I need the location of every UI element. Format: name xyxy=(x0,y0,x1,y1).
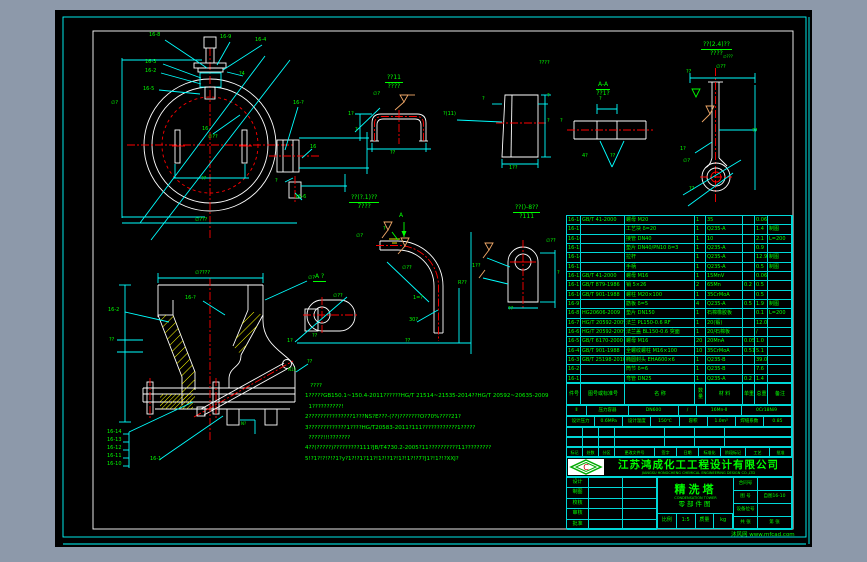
bom-cell-total-weight: 0.5 xyxy=(755,281,768,289)
title-right-row: 共 张 第 张 xyxy=(734,517,792,530)
bom-cell-no: 16-12 xyxy=(567,272,581,280)
view-title: ??(?.1)?? 7??? xyxy=(349,194,379,211)
title-right-value xyxy=(758,504,792,516)
summary-cell: Ⅱ xyxy=(567,406,587,415)
bom-header: 件号 图号或标准号 名 称 数量 材 料 单重 总重 备注 xyxy=(566,383,793,405)
view-title-scale: ???? xyxy=(385,83,403,91)
table-row: 16-10 GB/T 901-1988 螺柱 M20×100 1 35CrMoA… xyxy=(567,291,792,300)
bom-cell-material: Q235-B xyxy=(706,356,743,364)
bom-cell-total-weight: 1.0 xyxy=(755,337,768,345)
annotation-label: 30? xyxy=(409,317,418,323)
bom-cell-no: 16-5 xyxy=(567,337,581,345)
annotation-label: ? xyxy=(355,127,358,133)
bom-cell-remark xyxy=(768,281,792,289)
bom-cell-name: 拉杆 xyxy=(625,253,695,261)
bom-cell-unit-weight xyxy=(743,319,755,327)
bom-cell-unit-weight xyxy=(743,309,755,317)
drawing-title: 精洗塔 xyxy=(675,484,717,496)
bom-cell-material: 35 xyxy=(706,216,743,224)
annotation-label: 16 xyxy=(310,144,316,150)
scale-cell: 比例 xyxy=(658,514,677,528)
table-row: 16-15 垫片 DN40/PN10 δ=3 1 Q235-A 0.9 xyxy=(567,244,792,253)
bom-cell-standard xyxy=(581,375,625,383)
bom-cell-name: 垫片 DN150 xyxy=(625,309,695,317)
bom-header-material: 材 料 xyxy=(706,384,743,404)
bom-cell-name: 螺母 M16 xyxy=(625,272,695,280)
bom-cell-standard: GB/T 879-1986 xyxy=(581,281,625,289)
revision-empty-cell xyxy=(665,428,695,436)
revision-header-row: 标记处数分区更改文件号签字日期标准化阶段标记工艺批准 xyxy=(566,447,793,457)
bom-cell-standard: GB/T 41-2000 xyxy=(581,272,625,280)
annotation-label: ? xyxy=(383,226,386,232)
summary-cell: / xyxy=(679,406,697,415)
bom-cell-standard xyxy=(581,300,625,308)
bom-cell-remark: 制图 xyxy=(768,263,792,271)
revision-empty-cell xyxy=(615,428,665,436)
revision-empty-cell xyxy=(615,438,665,446)
summary-cell: 设计温度 xyxy=(623,417,651,426)
bom-cell-standard xyxy=(581,244,625,252)
bom-cell-unit-weight: 0.51 xyxy=(743,347,755,355)
revision-header-cell: 分区 xyxy=(599,448,615,456)
bom-cell-qty: 1 xyxy=(695,263,706,271)
title-right-row: 合同号 xyxy=(734,478,792,491)
annotation-label: 16-1 xyxy=(150,456,161,462)
view-title-scale: ??1? xyxy=(596,90,610,98)
title-center: 精洗塔 CONDENSATION TOWER 零部件图 比例1:5质量kg xyxy=(658,478,734,528)
table-row: 16-12 GB/T 41-2000 螺母 M16 1 15MnV 0.06 xyxy=(567,272,792,281)
bom-cell-material: 15MnV xyxy=(706,272,743,280)
revision-header-cell: 签字 xyxy=(655,448,677,456)
annotation-label: 16-13 xyxy=(107,437,122,443)
revision-empty-cell xyxy=(725,428,792,436)
signature-name-cell xyxy=(589,509,623,518)
bom-cell-name: 接管 DN40 xyxy=(625,235,695,243)
bom-cell-no: 16-6 xyxy=(567,328,581,336)
bom-cell-no: 16-11 xyxy=(567,281,581,289)
bom-cell-total-weight: 12.9 xyxy=(755,253,768,261)
annotation-label: ∅? xyxy=(683,158,690,164)
view-title-scale: 7??? xyxy=(349,203,379,211)
signature-date-cell xyxy=(623,499,657,508)
bom-cell-name: 手柄 xyxy=(625,263,695,271)
bom-header-total-weight: 总重 xyxy=(755,384,768,404)
bom-cell-standard: GB/T 901-1988 xyxy=(581,347,625,355)
annotation-label: 1? xyxy=(680,146,686,152)
revision-empty-row xyxy=(566,427,793,437)
table-row: 16-3 GB/T 25198-2010 椭圆封头 EHA600×6 1 Q23… xyxy=(567,356,792,365)
bom-cell-qty: 4 xyxy=(695,300,706,308)
revision-header-cell: 更改文件号 xyxy=(615,448,655,456)
title-right-value xyxy=(758,478,792,490)
signature-name-cell xyxy=(589,499,623,508)
view-lug xyxy=(295,297,358,342)
technical-notes: ????1?????GB150.1~150.4-2011??????HG/T 2… xyxy=(305,381,590,464)
table-row: 16-11 GB/T 879-1986 销 5×26 2 65Mn 0.2 0.… xyxy=(567,281,792,290)
table-row: 16-6 HG/T 20592-2009 法兰盖 BL150-0.6 突面 1 … xyxy=(567,328,792,337)
revision-header-cell: 阶段标记 xyxy=(721,448,746,456)
bom-cell-no: 16-18 xyxy=(567,216,581,224)
table-row: 16-2 筒节 δ=6 1 Q235-B 7.6 xyxy=(567,365,792,374)
bom-cell-standard xyxy=(581,225,625,233)
signature-date-cell xyxy=(623,478,657,487)
bom-cell-material: 65Mn xyxy=(706,281,743,289)
bom-cell-standard: GB/T 901-1988 xyxy=(581,291,625,299)
bom-cell-no: 16-1 xyxy=(567,375,581,383)
bom-cell-no: 16-13 xyxy=(567,263,581,271)
bom-cell-unit-weight: 0.2 xyxy=(743,281,755,289)
company-logo-icon: C xyxy=(568,459,604,475)
bom-cell-standard xyxy=(581,263,625,271)
signature-grid: 设计 制图 校核 xyxy=(567,478,658,528)
annotation-label: ∅? xyxy=(356,233,363,239)
annotation-label: ?(11) xyxy=(443,111,456,117)
summary-cell: 容积 xyxy=(680,417,708,426)
annotation-label: ∅?? xyxy=(716,64,726,70)
annotation-label: ? xyxy=(557,270,560,276)
view-title-text: ??11 xyxy=(385,74,403,83)
bom-cell-remark xyxy=(768,375,792,383)
bom-cell-remark: L=200 xyxy=(768,235,792,243)
annotation-label: ∅???? xyxy=(195,270,210,276)
table-row: 16-7 HG/T 20592-2009 法兰 PL150-0.6 RF 1 2… xyxy=(567,319,792,328)
bom-cell-material: 35CrMoA xyxy=(706,291,743,299)
bom-cell-remark xyxy=(768,272,792,280)
view-keyhole-plate xyxy=(479,240,555,310)
bom-cell-standard xyxy=(581,365,625,373)
bom-cell-total-weight: 7.6 xyxy=(755,365,768,373)
summary-cell: 压力容器 xyxy=(587,406,629,415)
bom-cell-unit-weight xyxy=(743,216,755,224)
annotation-label: R?? xyxy=(458,280,467,286)
view-title-scale: ???? xyxy=(701,50,732,58)
bom-cell-unit-weight xyxy=(743,253,755,261)
note-line: 3?????????????1????HG/T20583-2011?111???… xyxy=(305,423,590,433)
view-title-text: ??(2.4)?? xyxy=(701,41,732,50)
bom-cell-qty: 1 xyxy=(695,328,706,336)
annotation-label: ?? xyxy=(201,176,206,182)
annotation-label: 16-2 xyxy=(145,68,156,74)
annotation-label: 16-? xyxy=(185,295,196,301)
view-title: ??(2.4)?? ???? xyxy=(701,41,732,58)
bom-cell-unit-weight xyxy=(743,235,755,243)
revision-empty-cell xyxy=(695,428,725,436)
table-row: 16-9 筋板 δ=5 4 Q235-A 0.5 1.9 制图 xyxy=(567,300,792,309)
annotation-label: 1?? xyxy=(509,165,518,171)
title-right-row: 设备位号 xyxy=(734,504,792,517)
annotation-label: 16-11 xyxy=(107,453,122,459)
bom-cell-material: Q235-B xyxy=(706,365,743,373)
note-line: ?????!!!??????? xyxy=(305,433,590,443)
bom-cell-total-weight: 1.4 xyxy=(755,375,768,383)
bom-cell-qty: 1 xyxy=(695,309,706,317)
annotation-label: ?? xyxy=(508,306,513,312)
bom-cell-standard: HG20606-2009 xyxy=(581,309,625,317)
annotation-label: 16-10 xyxy=(107,461,122,467)
annotation-label: ???? xyxy=(539,60,550,66)
bom-cell-total-weight: 12.0 xyxy=(755,319,768,327)
bom-cell-qty: 2 xyxy=(695,281,706,289)
bom-header-standard: 图号或标准号 xyxy=(581,384,625,404)
annotation-label: N? xyxy=(241,421,246,427)
annotation-label: ∅?? xyxy=(402,265,412,271)
signature-row: 制图 xyxy=(567,488,657,498)
bom-cell-material: Q235-A xyxy=(706,253,743,261)
annotation-label: ?? xyxy=(405,338,410,344)
bom-cell-no: 16-4 xyxy=(567,347,581,355)
note-line: 4??(?????)?????????111?JB/T4730.2-2005?1… xyxy=(305,443,590,453)
annotation-label: 16-? xyxy=(293,100,304,106)
note-line: 2???????????????1???NS?E???-(??)???????O… xyxy=(305,412,590,422)
revision-empty-cell xyxy=(583,438,599,446)
signature-name-cell xyxy=(589,478,623,487)
bom-cell-name: 销 5×26 xyxy=(625,281,695,289)
bom-cell-remark xyxy=(768,244,792,252)
bom-cell-remark xyxy=(768,216,792,224)
signature-row: 批准 xyxy=(567,520,657,530)
summary-cell: 0Cr18Ni9 xyxy=(742,406,792,415)
annotation-label: 16-14 xyxy=(107,429,122,435)
bom-cell-unit-weight: 0.05 xyxy=(743,337,755,345)
bom-cell-remark xyxy=(768,347,792,355)
bom-cell-material: 石棉橡胶板 xyxy=(706,309,743,317)
bom-cell-standard: GB/T 6170-2000 xyxy=(581,337,625,345)
revision-header-cell: 工艺 xyxy=(746,448,770,456)
view-title-scale: ?111 xyxy=(513,213,540,221)
revision-empty-cell xyxy=(583,428,599,436)
summary-cell: 0.85 xyxy=(764,417,792,426)
bom-cell-name: 工艺块 δ=20 xyxy=(625,225,695,233)
bom-cell-qty: 1 xyxy=(695,244,706,252)
bom-cell-remark xyxy=(768,328,792,336)
summary-cell: 0.6MPa xyxy=(595,417,623,426)
drawing-canvas[interactable]: 16-816-916-416-316-216-5∅?16∅???416-?16?… xyxy=(55,10,812,547)
bom-header-qty: 数量 xyxy=(695,384,706,404)
bom-cell-total-weight: 2.1 xyxy=(755,235,768,243)
bom-cell-qty: 1 xyxy=(695,356,706,364)
bom-cell-qty: 1 xyxy=(695,291,706,299)
summary-cell: 设计压力 xyxy=(567,417,595,426)
svg-text:C: C xyxy=(583,463,589,472)
bom-cell-name: 螺柱 M20×100 xyxy=(625,291,695,299)
annotation-label: 1?? xyxy=(472,263,481,269)
revision-header-cell: 处数 xyxy=(583,448,599,456)
annotation-label: ∅?? xyxy=(546,238,556,244)
bom-cell-name: 螺母 M20 xyxy=(625,216,695,224)
annotation-label: ?4 xyxy=(239,71,245,77)
bom-cell-qty: 1 xyxy=(695,272,706,280)
watermark: 沐风网 www.mfcad.com xyxy=(731,530,795,538)
bom-cell-total-weight: 1.9 xyxy=(755,300,768,308)
bom-cell-material: 20MnA xyxy=(706,337,743,345)
note-line: ???? xyxy=(305,381,590,391)
annotation-label: ?? xyxy=(109,337,114,343)
bom-cell-qty: 1 xyxy=(695,365,706,373)
bom-cell-no: 16-3 xyxy=(567,356,581,364)
bom-cell-name: 垫片 DN40/PN10 δ=3 xyxy=(625,244,695,252)
table-row: 16-17 工艺块 δ=20 1 Q235-A 1.4 制图 xyxy=(567,225,792,234)
annotation-label: ? xyxy=(547,118,550,124)
signature-row: 校核 xyxy=(567,499,657,509)
bom-cell-standard: HG/T 20592-2009 xyxy=(581,319,625,327)
table-row: 16-16 接管 DN40 1 10 2.1 L=200 xyxy=(567,235,792,244)
view-title: A-A ??1? xyxy=(596,81,610,98)
bom-cell-remark xyxy=(768,337,792,345)
bom-cell-no: 16-8 xyxy=(567,309,581,317)
annotation-label: ? xyxy=(547,93,550,99)
annotation-label: 16-4 xyxy=(255,37,266,43)
summary-row-b: 设计压力0.6MPa设计温度150℃容积1.0m³焊缝系数0.85 xyxy=(566,416,793,427)
note-line: 1?????GB150.1~150.4-2011??????HG/T 21514… xyxy=(305,391,590,401)
bom-header-unit-weight: 单重 xyxy=(743,384,755,404)
bom-cell-unit-weight xyxy=(743,328,755,336)
title-right-label: 设备位号 xyxy=(734,504,758,516)
annotation-label: 16-3 xyxy=(145,59,156,65)
bom-cell-qty: 1 xyxy=(695,375,706,383)
summary-cell: 焊缝系数 xyxy=(736,417,764,426)
bom-cell-qty: 1 xyxy=(695,319,706,327)
bom-cell-standard xyxy=(581,253,625,261)
bom-cell-no: 16-15 xyxy=(567,244,581,252)
summary-cell: DN600 xyxy=(629,406,679,415)
signature-role-label: 制图 xyxy=(567,488,589,497)
annotation-label: ∅?? xyxy=(333,293,343,299)
bom-cell-qty: 1 xyxy=(695,216,706,224)
bom-cell-unit-weight xyxy=(743,263,755,271)
bom-cell-no: 16-2 xyxy=(567,365,581,373)
bom-cell-standard: GB/T 41-2000 xyxy=(581,216,625,224)
bom-header-name: 名 称 xyxy=(625,384,695,404)
table-row: 16-8 HG20606-2009 垫片 DN150 1 石棉橡胶板 0.1 L… xyxy=(567,309,792,318)
bom-cell-total-weight: 0.06 xyxy=(755,272,768,280)
bom-cell-name: 法兰盖 BL150-0.6 突面 xyxy=(625,328,695,336)
annotation-label: ?? xyxy=(312,333,317,339)
revision-empty-cell xyxy=(725,438,792,446)
title-right-label: 合同号 xyxy=(734,478,758,490)
summary-cell: 150℃ xyxy=(651,417,679,426)
signature-name-cell xyxy=(589,488,623,497)
annotation-label: ? xyxy=(560,118,563,124)
title-right-value: 自图16-10 xyxy=(758,491,792,503)
view-bent-pipe xyxy=(297,222,471,354)
bom-cell-unit-weight xyxy=(743,244,755,252)
bom-cell-material: Q235-A xyxy=(706,375,743,383)
bom-cell-name: 螺母 M16 xyxy=(625,337,695,345)
annotation-label: ∅? xyxy=(373,91,380,97)
annotation-label: 16 xyxy=(202,126,208,132)
bom-cell-qty: 1 xyxy=(695,235,706,243)
revision-header-cell: 日期 xyxy=(677,448,699,456)
bom-cell-qty: 1 xyxy=(695,253,706,261)
bom-cell-remark: 制图 xyxy=(768,225,792,233)
revision-header-cell: 标准化 xyxy=(699,448,721,456)
cad-application-background: 16-816-916-416-316-216-5∅?16∅???416-?16?… xyxy=(0,0,867,562)
view-title-text: A ? xyxy=(313,273,326,282)
bom-cell-qty: 20 xyxy=(695,337,706,345)
title-block: 设计 制图 校核 xyxy=(566,477,793,529)
annotation-label: 16-8 xyxy=(149,32,160,38)
bom-cell-unit-weight xyxy=(743,291,755,299)
annotation-label: A xyxy=(399,213,403,219)
table-row: 16-13 手柄 1 Q235-A 0.5 制图 xyxy=(567,263,792,272)
annotation-label: ?? xyxy=(390,150,395,156)
view-title-text: A-A xyxy=(596,81,610,90)
bom-cell-material: 20/石棉板 xyxy=(706,328,743,336)
annotation-label: ? xyxy=(482,96,485,102)
bom-cell-unit-weight xyxy=(743,225,755,233)
scale-cell: 质量 xyxy=(696,514,715,528)
annotation-label: ?? xyxy=(752,128,757,134)
bom-cell-name: 弯管 DN25 xyxy=(625,375,695,383)
annotation-label: 1=? xyxy=(413,295,423,301)
title-right-row: 图 号 自图16-10 xyxy=(734,491,792,504)
summary-cell: 16Mn-Ⅱ xyxy=(697,406,742,415)
table-row: 16-4 GB/T 901-1988 全螺纹螺柱 M16×100 10 35Cr… xyxy=(567,347,792,356)
bom-cell-material: Q235-A xyxy=(706,300,743,308)
bom-cell-unit-weight: 0.5 xyxy=(743,300,755,308)
table-row: 16-14 拉杆 1 Q235-A 12.9 制图 xyxy=(567,253,792,262)
annotation-label: 1? xyxy=(348,111,354,117)
revision-empty-cell xyxy=(599,438,615,446)
summary-cell: 1.0m³ xyxy=(708,417,736,426)
signature-role-label: 校核 xyxy=(567,499,589,508)
annotation-label: ? xyxy=(275,178,278,184)
company-row: C 江苏鸿成化工工程设计有限公司 JIANGSU HONGCHENG CHEMI… xyxy=(566,457,793,477)
bom-cell-total-weight: 0.06 xyxy=(755,216,768,224)
revision-empty-row xyxy=(566,437,793,447)
view-title: ??()-8?? ?111 xyxy=(513,204,540,221)
bom-cell-qty: 1 xyxy=(695,225,706,233)
bom-cell-no: 16-14 xyxy=(567,253,581,261)
bom-cell-total-weight: 0.5 xyxy=(755,291,768,299)
bom-cell-material: Q235-A xyxy=(706,244,743,252)
annotation-label: 16-5 xyxy=(143,86,154,92)
bom-cell-material: 35CrMoA xyxy=(706,347,743,355)
bom-cell-material: 10 xyxy=(706,235,743,243)
annotation-label: N15 xyxy=(288,367,296,373)
annotation-label: ?? xyxy=(610,153,615,159)
bom-cell-total-weight: 5.1 xyxy=(755,347,768,355)
signature-role-label: 设计 xyxy=(567,478,589,487)
bom-table: 16-18 GB/T 41-2000 螺母 M20 1 35 0.06 16-1… xyxy=(566,215,793,383)
signature-date-cell xyxy=(623,520,657,529)
view-title: A ? xyxy=(313,273,326,282)
scale-cell: 1:5 xyxy=(677,514,696,528)
bom-cell-standard xyxy=(581,235,625,243)
drawing-subtitle: 零部件图 xyxy=(679,500,713,508)
view-title-text: ??(?.1)?? xyxy=(349,194,379,203)
bom-cell-unit-weight xyxy=(743,365,755,373)
revision-empty-cell xyxy=(599,428,615,436)
annotation-label: 16-9 xyxy=(220,34,231,40)
bom-cell-name: 筋板 δ=5 xyxy=(625,300,695,308)
bom-cell-unit-weight xyxy=(743,272,755,280)
bom-header-remark: 备注 xyxy=(768,384,792,404)
annotation-label: ?? xyxy=(307,359,312,365)
revision-empty-cell xyxy=(695,438,725,446)
bom-cell-remark xyxy=(768,365,792,373)
bom-cell-total-weight: 0.9 xyxy=(755,244,768,252)
bom-cell-name: 全螺纹螺柱 M16×100 xyxy=(625,347,695,355)
signature-date-cell xyxy=(623,488,657,497)
scale-row: 比例1:5质量kg xyxy=(658,514,733,528)
annotation-label: ?? xyxy=(689,186,694,192)
signature-role-label: 审核 xyxy=(567,509,589,518)
revision-empty-cell xyxy=(665,438,695,446)
bom-cell-total-weight: 0.1 xyxy=(755,309,768,317)
view-plate xyxy=(457,95,551,168)
view-title-text: ??()-8?? xyxy=(513,204,540,213)
